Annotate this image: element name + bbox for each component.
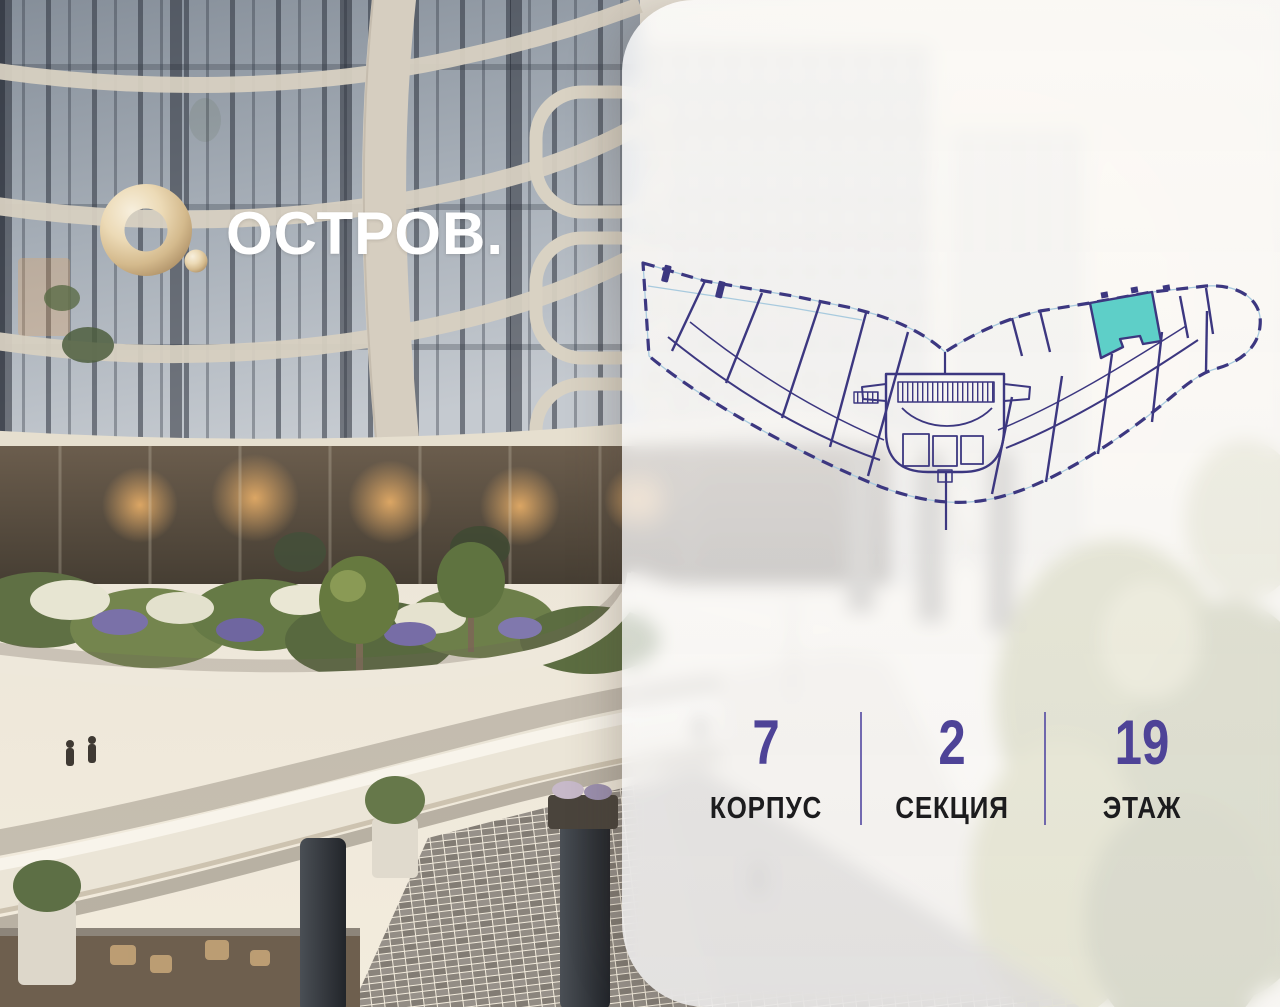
- brand-logo-icon: [90, 174, 215, 294]
- balcony-dividers: [661, 265, 1171, 299]
- stat-floor-value: 19: [1064, 713, 1220, 773]
- logo-dot: [185, 250, 208, 273]
- location-stats: 7 КОРПУС 2 СЕКЦИЯ 19 ЭТАЖ: [622, 700, 1280, 840]
- floor-plan: [633, 250, 1279, 545]
- stat-section-value: 2: [874, 713, 1030, 773]
- stat-building-value: 7: [688, 713, 844, 773]
- stat-floor-label: ЭТАЖ: [1058, 792, 1226, 823]
- screenshot-root: ОСТРОВ.: [0, 0, 1280, 1007]
- stat-section-label: СЕКЦИЯ: [868, 792, 1036, 823]
- brand-wordmark: ОСТРОВ.: [226, 204, 504, 264]
- stat-floor: 19 ЭТАЖ: [1042, 700, 1242, 823]
- stat-building-label: КОРПУС: [682, 792, 850, 823]
- logo-ring: [100, 184, 192, 276]
- stat-section: 2 СЕКЦИЯ: [852, 700, 1052, 823]
- stat-building: 7 КОРПУС: [666, 700, 866, 823]
- bridge-pillar: [300, 838, 346, 1007]
- building-core: [854, 352, 1030, 530]
